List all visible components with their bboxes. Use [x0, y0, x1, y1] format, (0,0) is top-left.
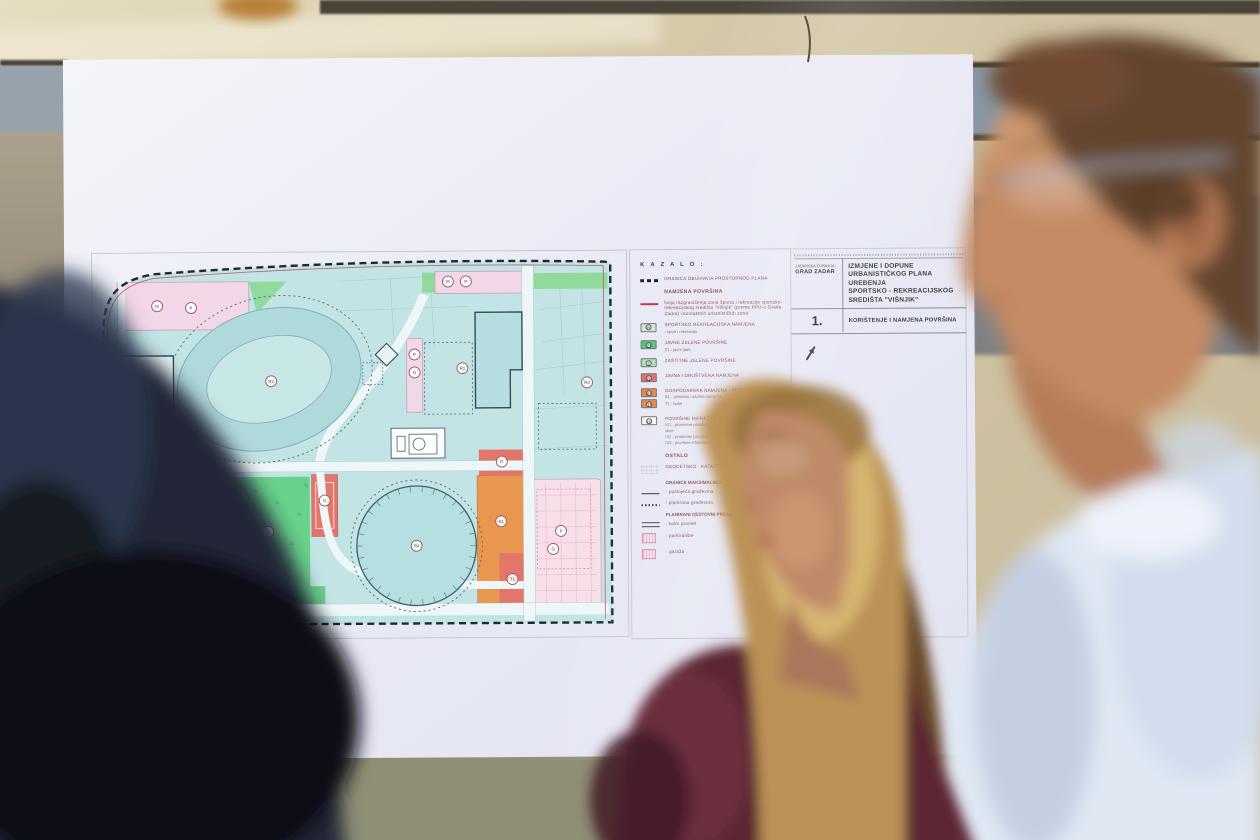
legend-item: GEODETSKO - KATASTARSKA PODLOGA — [641, 463, 785, 474]
legend-item: - planirana građevina — [642, 500, 786, 507]
legend-section-header: PLANIRANI CESTOVNI PROMET — [666, 511, 786, 517]
photo-scene: R2R1R3R4Z1Z1DD1D2DK1T1DPGISPISPPG K A Z … — [0, 0, 1260, 840]
legend-item: Z1JAVNE ZELENE POVRŠINEZ1 - javni park — [641, 339, 785, 352]
box-swatch-icon: R — [640, 323, 664, 333]
svg-text:D1: D1 — [190, 527, 196, 532]
svg-text:R2: R2 — [268, 379, 274, 384]
hatch-swatch-icon — [642, 549, 666, 560]
map-marker: K1 — [496, 516, 507, 527]
frame-right-line2 — [972, 134, 1260, 141]
legend-section-header: GRANICE MAKSIMALNOG VOLUMENA OBJEKATA — [665, 479, 785, 485]
map-marker: IS — [442, 276, 453, 287]
legend-label: SPORTSKO REKREACIJSKA NAMJENA — [664, 322, 755, 328]
geo-swatch-icon — [641, 464, 665, 475]
legend-sublabel: IS1 - prometne površine (ulice) - primar… — [665, 422, 785, 433]
legend-heading: K A Z A L O : — [640, 261, 784, 268]
svg-text:T1: T1 — [510, 577, 516, 582]
map-marker: G — [409, 367, 420, 378]
legend-item: DJAVNA I DRUŠTVENA NAMJENA — [641, 372, 785, 382]
legend-sublabel: IS3 - površine infrastrukturnih uređaja — [665, 440, 785, 446]
authority-city: GRAD ZADAR — [795, 269, 840, 275]
legend-label: GRANICA OBUHVATA PROSTORNOG PLANA — [664, 275, 767, 281]
legend-label: GOSPODARSKA NAMJENA - POSLOVNA — [665, 387, 759, 393]
legend-item: - postojeća građevina — [642, 488, 786, 495]
map-marker: Z1 — [259, 596, 270, 607]
solid-swatch-icon — [642, 489, 666, 494]
hatch-swatch-icon — [642, 533, 666, 544]
title-column: ZADARSKA ŽUPANIJA GRAD ZADAR IZMJENE I D… — [791, 248, 967, 637]
legend-label: - parkiralište — [666, 533, 694, 539]
building-public-tab — [158, 519, 166, 535]
legend-label: - planirana građevina — [666, 500, 713, 506]
box-swatch-icon: Z — [641, 358, 665, 368]
wall-left-grey-band — [0, 66, 68, 132]
map-marker: Z1 — [263, 526, 274, 537]
wall-right-grey-band — [972, 68, 1260, 134]
legend-sublabel: K1 - pretežito uslužna namjena — [665, 394, 759, 400]
map-marker: D — [139, 558, 150, 569]
box-swatch-icon: D — [641, 373, 665, 383]
legend-section-header: NAMJENA POVRŠINA — [664, 288, 784, 295]
map-marker: R2 — [266, 376, 277, 387]
map-marker: R3 — [581, 377, 592, 388]
svg-text:D: D — [143, 561, 146, 566]
svg-text:IS: IS — [155, 304, 159, 309]
north-arrow — [806, 346, 816, 361]
legend-sublabel: IS2 - prometne površine - kolni prilazi … — [665, 433, 785, 439]
plan-map: R2R1R3R4Z1Z1DD1D2DK1T1DPGISPISPPG — [91, 249, 631, 641]
double-swatch-icon — [642, 521, 666, 528]
svg-text:P: P — [190, 306, 193, 311]
map-marker: D — [319, 495, 330, 506]
legend-label: linija razgraničenja zona športa i rekre… — [664, 299, 784, 317]
legend-sublabel: Z1 - javni park — [665, 346, 728, 352]
map-marker: T1 — [507, 574, 518, 585]
legend-item: RSPORTSKO REKREACIJSKA NAMJENA- šport i … — [640, 322, 784, 335]
box-swatch-icon: Z1 — [641, 340, 665, 350]
plan-poster: R2R1R3R4Z1Z1DD1D2DK1T1DPGISPISPPG K A Z … — [63, 54, 977, 760]
map-marker: G — [548, 543, 559, 554]
green-strip-a — [422, 273, 436, 293]
poster-right-column: K A Z A L O : GRANICA OBUHVATA PROSTORNO… — [629, 247, 968, 639]
legend-item: ISPOVRŠINE INFRASTRUKTURNIH SUSTAVAIS1 -… — [641, 415, 785, 446]
wall-right-tan-band — [972, 141, 1260, 195]
dash-swatch-icon — [640, 276, 664, 282]
zone-pink-hatch-parking — [531, 479, 602, 609]
svg-text:D: D — [500, 459, 503, 464]
building-public-white — [166, 487, 230, 573]
map-marker: P — [409, 349, 420, 360]
legend-label: - kolni promet — [666, 521, 697, 527]
legend-item: - kolni promet — [642, 520, 786, 527]
legend-section-header: OSTALO — [665, 452, 785, 459]
legend-label: JAVNE ZELENE POVRŠINE — [665, 340, 728, 346]
redline-swatch-icon — [640, 300, 664, 305]
map-marker: D2 — [201, 524, 212, 535]
legend-sublabel: - šport i rekreacija — [665, 329, 755, 335]
box-swatch-icon: IS — [641, 416, 665, 426]
svg-text:R4: R4 — [414, 543, 420, 548]
legend-label: - postojeća građevina — [666, 489, 714, 495]
plan-title-line: URBANISTIČKOG PLANA UREĐENJA — [848, 271, 966, 289]
svg-text:P: P — [560, 529, 563, 534]
svg-text:Z1: Z1 — [262, 599, 268, 604]
legend-panel: K A Z A L O : GRANICA OBUHVATA PROSTORNO… — [630, 249, 793, 638]
svg-text:Z1: Z1 — [266, 529, 272, 534]
map-marker: D — [496, 456, 507, 467]
box2-swatch-icon: K1T1 — [641, 388, 665, 411]
plan-title: IZMJENE I DOPUNEURBANISTIČKOG PLANA UREĐ… — [843, 258, 966, 308]
legend-label: - garaža — [666, 549, 684, 555]
legend-item: linija razgraničenja zona športa i rekre… — [640, 299, 784, 317]
legend-label: JAVNA I DRUŠTVENA NAMJENA — [665, 372, 739, 378]
legend-sublabel: T1 - hotel — [665, 400, 759, 406]
legend-label: POVRŠINE INFRASTRUKTURNIH SUSTAVA — [665, 415, 785, 421]
map-inset-box — [391, 428, 445, 458]
map-marker: R4 — [411, 540, 422, 551]
legend-item: K1T1GOSPODARSKA NAMJENA - POSLOVNAK1 - p… — [641, 387, 785, 410]
map-marker: IS — [152, 301, 163, 312]
svg-text:K1: K1 — [498, 519, 504, 524]
dots-swatch-icon — [642, 500, 666, 506]
sheet-number: 1. — [792, 309, 844, 332]
svg-text:R3: R3 — [584, 380, 590, 385]
green-strip-b — [534, 273, 608, 289]
svg-text:D: D — [323, 498, 326, 503]
svg-text:P: P — [413, 352, 416, 357]
legend-item: - parkiralište — [642, 532, 786, 543]
svg-text:R1: R1 — [460, 366, 466, 371]
wall-right-lower — [972, 195, 1260, 355]
legend-item: - garaža — [642, 548, 786, 559]
legend-item: GRANICA OBUHVATA PROSTORNOG PLANA — [640, 275, 784, 282]
svg-text:D2: D2 — [204, 527, 210, 532]
wall-left-lower — [0, 132, 68, 412]
svg-text:P: P — [464, 279, 467, 284]
map-marker: P — [186, 303, 197, 314]
map-marker: P — [556, 525, 567, 536]
map-marker: P — [460, 276, 471, 287]
map-marker: D1 — [187, 524, 198, 535]
frame-top-bar — [320, 0, 1260, 14]
map-marker: R1 — [457, 363, 468, 374]
svg-text:IS: IS — [446, 279, 450, 284]
legend-label: GEODETSKO - KATASTARSKA PODLOGA — [665, 463, 761, 469]
frame-bottom-post — [627, 750, 642, 840]
authority-county: ZADARSKA ŽUPANIJA — [795, 264, 840, 268]
legend-item: ZZAŠTITNE ZELENE POVRŠINE — [641, 357, 785, 367]
plan-title-line: SREDIŠTA "VIŠNJIK" — [848, 296, 966, 305]
title-block: ZADARSKA ŽUPANIJA GRAD ZADAR IZMJENE I D… — [791, 248, 967, 334]
plan-title-line: SPORTSKO - REKREACIJSKOG — [848, 288, 966, 297]
sheet-name: KORIŠTENJE I NAMJENA POVRŠINA — [844, 308, 967, 332]
legend-label: ZAŠTITNE ZELENE POVRŠINE — [665, 357, 736, 363]
